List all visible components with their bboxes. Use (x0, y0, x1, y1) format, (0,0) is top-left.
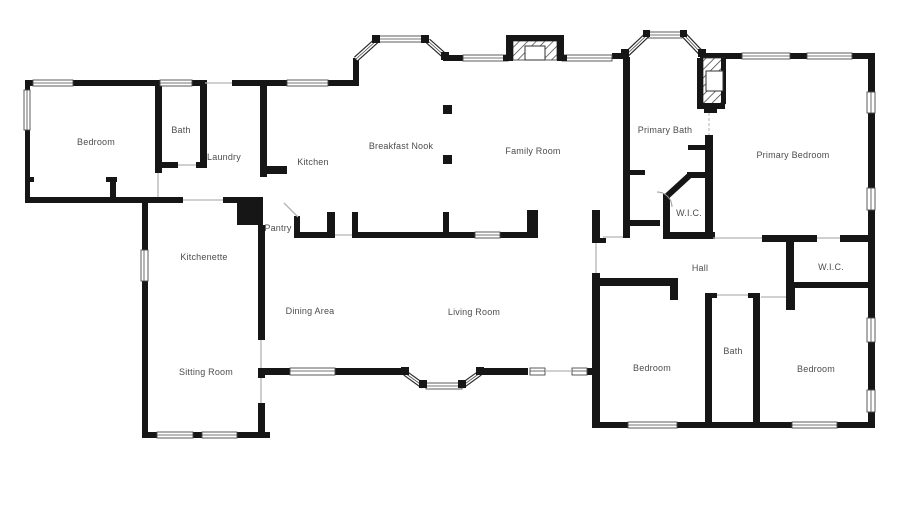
room-label-laundry: Laundry (207, 152, 241, 162)
room-label-primary-bedroom: Primary Bedroom (756, 150, 829, 160)
room-label-family-room: Family Room (505, 146, 560, 156)
room-label-primary-bath: Primary Bath (638, 125, 692, 135)
room-label-pantry: Pantry (264, 223, 292, 233)
fireplace-primary (697, 58, 726, 113)
room-label-bedroom-bottom-middle: Bedroom (633, 363, 671, 373)
wic-angled-wall (666, 175, 690, 197)
room-label-breakfast-nook: Breakfast Nook (369, 141, 434, 151)
room-labels: Bedroom Bath Laundry Kitchen Breakfast N… (77, 125, 844, 377)
room-label-sitting-room: Sitting Room (179, 367, 233, 377)
column-post (443, 105, 452, 114)
room-label-dining-area: Dining Area (286, 306, 335, 316)
room-label-wic-right: W.I.C. (818, 262, 844, 272)
floor-plan-drawing: Bedroom Bath Laundry Kitchen Breakfast N… (0, 0, 900, 529)
room-label-primary-wic: W.I.C. (676, 208, 702, 218)
interior-walls (28, 57, 873, 438)
room-label-bedroom-top-left: Bedroom (77, 137, 115, 147)
room-label-kitchen: Kitchen (297, 157, 328, 167)
room-label-living-room: Living Room (448, 307, 500, 317)
pantry-door-leaf (284, 203, 298, 217)
room-label-bath-bottom: Bath (723, 346, 742, 356)
bay-windows (356, 30, 706, 388)
room-label-bedroom-bottom-right: Bedroom (797, 364, 835, 374)
room-label-bath-top-left: Bath (171, 125, 190, 135)
column-post (443, 155, 452, 164)
room-label-kitchenette: Kitchenette (180, 252, 227, 262)
chimney-block (237, 202, 263, 225)
room-label-hall: Hall (692, 263, 708, 273)
floor-plan-canvas: Bedroom Bath Laundry Kitchen Breakfast N… (0, 0, 900, 529)
fireplace-family-room (503, 35, 567, 61)
